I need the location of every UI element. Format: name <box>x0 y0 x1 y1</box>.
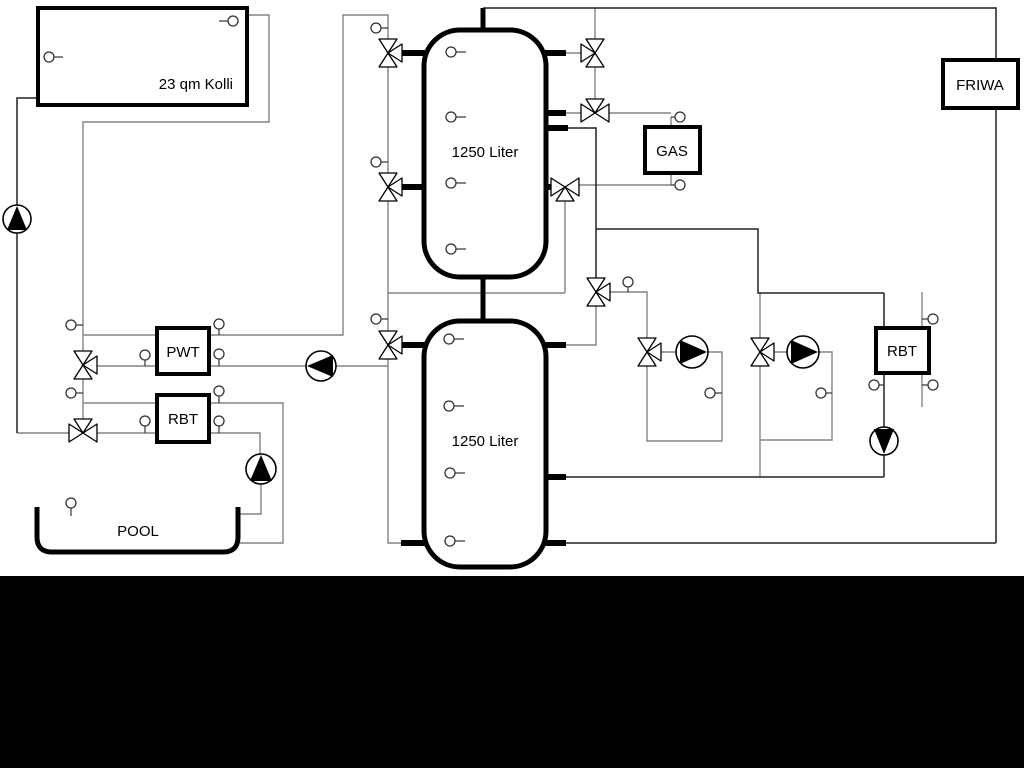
pwt-label: PWT <box>166 344 199 361</box>
hydraulic-schematic: 23 qm Kolli 1250 Liter 1250 Liter PWT RB… <box>0 0 1024 768</box>
tank-upper-label: 1250 Liter <box>452 144 519 161</box>
tank-lower-label: 1250 Liter <box>452 433 519 450</box>
circuit1-pump-icon <box>676 336 708 368</box>
collector-label: 23 qm Kolli <box>159 76 233 93</box>
schematic-canvas: 23 qm Kolli 1250 Liter 1250 Liter PWT RB… <box>0 0 1024 768</box>
rbt2-pump-icon <box>870 427 898 455</box>
rbt-right-label: RBT <box>887 343 917 360</box>
gas-label: GAS <box>656 143 688 160</box>
circuit2-pump-icon <box>787 336 819 368</box>
pool-label: POOL <box>117 523 159 540</box>
friwa-label: FRIWA <box>956 77 1004 94</box>
rbt-left-label: RBT <box>168 411 198 428</box>
solar-pump-icon <box>3 205 31 233</box>
pwt-pump-icon <box>306 351 336 381</box>
black-letterbox <box>0 576 1024 768</box>
pool-pump-icon <box>246 454 276 484</box>
